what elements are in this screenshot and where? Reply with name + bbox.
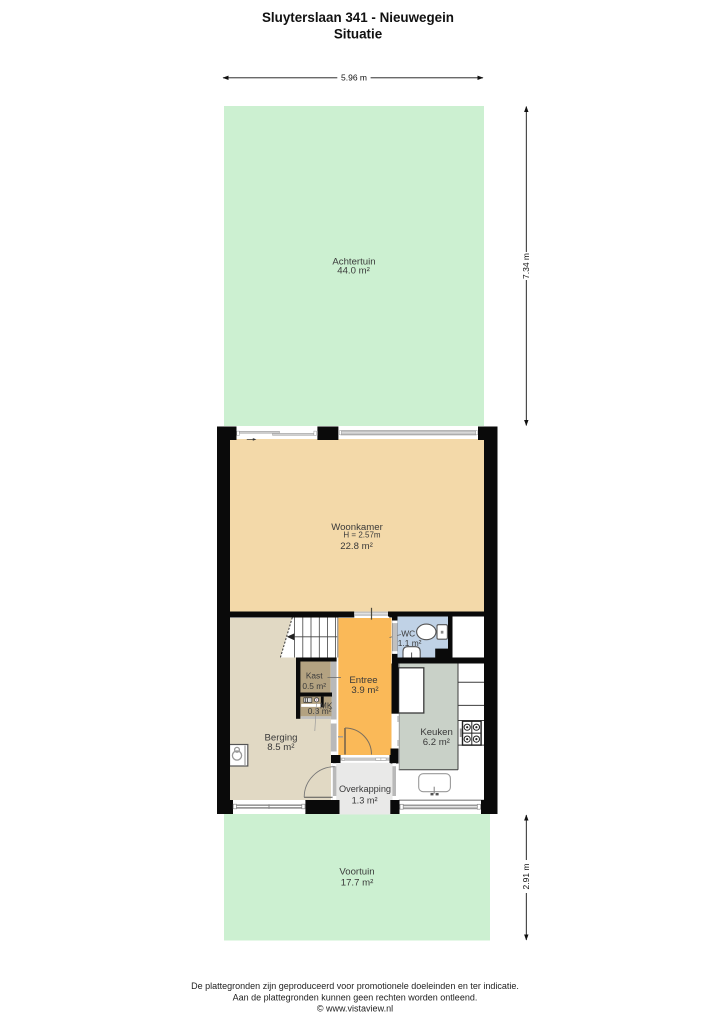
svg-text:2.91 m: 2.91 m	[521, 864, 531, 890]
svg-text:© www.vistaview.nl: © www.vistaview.nl	[317, 1004, 393, 1014]
svg-text:Sluyterslaan 341 - Nieuwegein: Sluyterslaan 341 - Nieuwegein	[262, 10, 454, 25]
svg-text:1.3 m²: 1.3 m²	[352, 796, 378, 806]
svg-text:Voortuin: Voortuin	[339, 866, 374, 877]
svg-text:6.2 m²: 6.2 m²	[423, 737, 451, 748]
svg-text:7.34 m: 7.34 m	[521, 253, 531, 279]
svg-text:0.3 m²: 0.3 m²	[308, 706, 332, 716]
svg-text:44.0 m²: 44.0 m²	[337, 266, 370, 277]
svg-text:Overkapping: Overkapping	[339, 784, 391, 794]
svg-text:5.96 m: 5.96 m	[341, 73, 367, 83]
svg-text:8.5 m²: 8.5 m²	[267, 742, 295, 753]
svg-text:H = 2.57m: H = 2.57m	[343, 530, 380, 539]
svg-text:22.8 m²: 22.8 m²	[340, 541, 373, 552]
svg-text:3.9 m²: 3.9 m²	[351, 685, 379, 696]
svg-text:De plattegronden zijn geproduc: De plattegronden zijn geproduceerd voor …	[191, 981, 519, 991]
svg-text:Kast: Kast	[306, 671, 323, 681]
svg-text:Aan de plattegronden kunnen ge: Aan de plattegronden kunnen geen rechten…	[233, 993, 478, 1003]
svg-text:Situatie: Situatie	[334, 27, 382, 42]
svg-text:0.5 m²: 0.5 m²	[302, 681, 326, 691]
svg-text:17.7 m²: 17.7 m²	[341, 877, 374, 888]
